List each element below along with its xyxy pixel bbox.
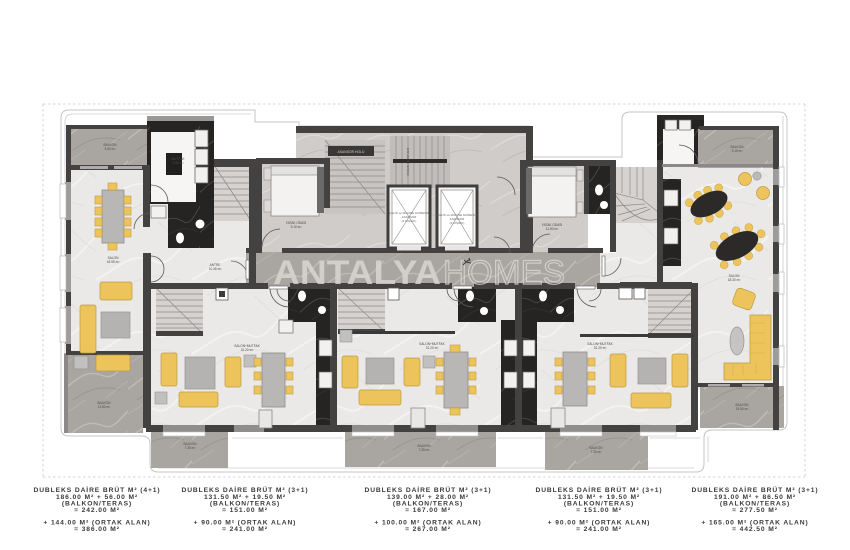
svg-text:HOMES: HOMES (443, 254, 565, 292)
svg-text:31.20 m²: 31.20 m² (594, 346, 607, 350)
svg-text:= 241.00 M²: = 241.00 M² (576, 526, 622, 533)
svg-text:43.95 m²: 43.95 m² (107, 260, 120, 264)
svg-text:7.35 m²: 7.35 m² (591, 450, 602, 454)
svg-text:ASANSÖR HOLÜ: ASANSÖR HOLÜ (338, 150, 365, 154)
svg-text:ANTALYA: ANTALYA (273, 254, 441, 292)
svg-text:11.50 m²: 11.50 m² (546, 227, 558, 231)
svg-text:(4 KİŞİLİK): (4 KİŞİLİK) (402, 218, 417, 223)
svg-text:YANGIN MERDİVENİ: YANGIN MERDİVENİ (405, 147, 410, 176)
svg-text:5.50 m²: 5.50 m² (173, 161, 184, 165)
svg-text:DUBLEKS DAİRE BRÜT M² (3+1): DUBLEKS DAİRE BRÜT M² (3+1) (364, 485, 491, 494)
svg-text:11.50 m²: 11.50 m² (98, 405, 110, 409)
svg-text:= 442.50 M²: = 442.50 M² (732, 526, 778, 533)
svg-text:DUBLEKS DAİRE BRÜT M² (3+1): DUBLEKS DAİRE BRÜT M² (3+1) (691, 485, 818, 494)
svg-text:= 167.00 M²: = 167.00 M² (405, 507, 451, 514)
svg-text:DUBLEKS DAİRE BRÜT M² (3+1): DUBLEKS DAİRE BRÜT M² (3+1) (181, 485, 308, 494)
svg-text:DUBLEKS DAİRE BRÜT M² (4+1): DUBLEKS DAİRE BRÜT M² (4+1) (33, 485, 160, 494)
svg-text:= 277.50 M²: = 277.50 M² (732, 507, 778, 514)
svg-text:= 241.00 M²: = 241.00 M² (222, 526, 268, 533)
svg-text:(4 KİŞİLİK): (4 KİŞİLİK) (450, 220, 465, 225)
svg-text:= 151.00 M²: = 151.00 M² (576, 507, 622, 514)
svg-text:= 151.00 M²: = 151.00 M² (222, 507, 268, 514)
svg-text:DUBLEKS DAİRE BRÜT M² (3+1): DUBLEKS DAİRE BRÜT M² (3+1) (535, 485, 662, 494)
svg-text:= 386.00 M²: = 386.00 M² (74, 526, 120, 533)
svg-text:10.35 m²: 10.35 m² (209, 267, 222, 271)
svg-text:15.50 m²: 15.50 m² (736, 407, 749, 411)
svg-text:9.10 m²: 9.10 m² (291, 225, 302, 229)
svg-text:31.20 m²: 31.20 m² (241, 348, 254, 352)
svg-text:7.35 m²: 7.35 m² (419, 448, 430, 452)
svg-text:9.15 m²: 9.15 m² (732, 149, 743, 153)
svg-text:= 242.00 M²: = 242.00 M² (74, 507, 120, 514)
svg-text:31.20 m²: 31.20 m² (426, 346, 439, 350)
svg-text:= 267.00 M²: = 267.00 M² (405, 526, 451, 533)
svg-text:5.50 m²: 5.50 m² (105, 147, 116, 151)
svg-text:7.35 m²: 7.35 m² (185, 446, 196, 450)
svg-text:18.30 m²: 18.30 m² (728, 278, 741, 282)
